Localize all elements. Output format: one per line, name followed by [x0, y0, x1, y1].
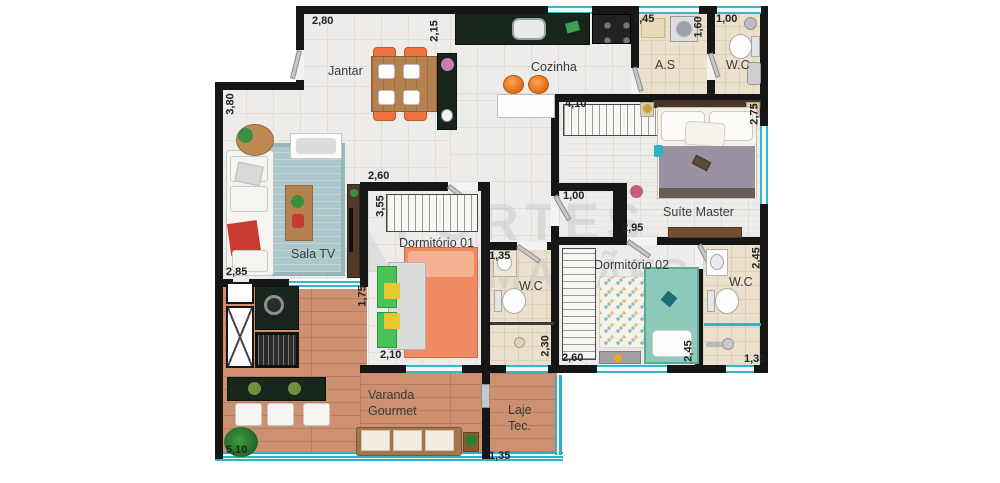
laje-line1: Laje — [508, 402, 532, 418]
place-setting — [403, 90, 420, 105]
room-label-wc-meio: W.C — [519, 279, 543, 293]
toilet-wc-suite — [715, 288, 739, 314]
varanda-sofa-cushion — [393, 430, 422, 451]
room-label-dorm2: Dormitório 02 — [594, 258, 669, 272]
dim-sala-left: 3,80 — [225, 93, 237, 114]
flower-vase — [441, 58, 454, 71]
tv — [349, 208, 353, 252]
suite-pillow-small — [684, 121, 726, 148]
varanda-sofa-cushion — [425, 430, 454, 451]
room-label-wc-top: W.C — [726, 58, 750, 72]
toilet-wc-top — [729, 34, 752, 59]
bar-stool — [235, 403, 262, 426]
laje-line2: Tec. — [508, 418, 532, 434]
suite-dresser — [668, 227, 742, 238]
varanda-line2: Gourmet — [368, 403, 417, 419]
dim-as-top: 1,45 — [633, 13, 654, 25]
duct-shaft — [226, 306, 254, 368]
bar-counter — [227, 377, 326, 401]
bar-plant — [288, 382, 301, 395]
toilet-tank-wc-top — [751, 36, 760, 57]
dim-laje-bottom: 1,35 — [489, 450, 510, 462]
window-dorm2 — [597, 365, 667, 373]
dim-dorm1-bottom: 2,10 — [380, 349, 401, 361]
place-setting — [403, 64, 420, 79]
wall-nook-right — [613, 183, 627, 245]
room-label-suite: Suíte Master — [663, 205, 734, 219]
dim-dorm1-left: 3,55 — [375, 195, 387, 216]
wall-dorm1-top — [360, 182, 448, 191]
coffee-table-decor — [292, 214, 304, 228]
wall-suite-bottom-right — [657, 237, 768, 245]
shaft-box — [226, 282, 254, 304]
shower-head-icon — [744, 17, 757, 30]
toilet-tank-wc-suite — [707, 290, 715, 312]
room-label-laje: Laje Tec. — [508, 402, 532, 435]
dim-dorm1-top: 2,60 — [368, 170, 389, 182]
suite-lamp — [643, 104, 652, 113]
bar-stool — [267, 403, 294, 426]
varanda-line1: Varanda — [368, 387, 417, 403]
wardrobe-dorm1 — [386, 194, 478, 232]
coffee-table — [285, 185, 313, 241]
dim-dorm2-right: 2,45 — [683, 340, 695, 361]
wall-suite-bottom-left — [559, 237, 627, 245]
gourmet-sink — [264, 295, 284, 315]
bar-stool — [303, 403, 330, 426]
floor-plan: FORTES GUIMARÃES 080 — [0, 0, 1000, 483]
grill — [255, 332, 299, 368]
dim-dorm1-varanda: 1,75 — [357, 285, 369, 306]
wall-wcmeio-top — [481, 242, 517, 250]
suite-blanket-edge — [659, 188, 755, 198]
wall-left — [215, 82, 223, 459]
wall-hall-right-low — [551, 226, 559, 373]
toilet-tank-wc-meio — [494, 290, 502, 312]
room-label-sala-tv: Sala TV — [291, 247, 335, 261]
window-wc-suite — [726, 365, 754, 373]
room-label-as: A.S — [655, 58, 675, 72]
bench-cushion — [296, 138, 336, 154]
dim-wc-suite-bottom: 1,35 — [744, 353, 765, 365]
wall-sala-dorm1 — [360, 182, 368, 287]
console-plant — [350, 189, 358, 197]
varanda-plant-small-leaves — [465, 434, 477, 446]
bar-plant — [248, 382, 261, 395]
wall-as-wc — [707, 6, 715, 54]
dim-jantar-right: 2,15 — [429, 20, 441, 41]
laje-gate — [481, 384, 490, 408]
wall-dorm1-wcmeio — [481, 182, 490, 373]
window-wc-meio — [506, 365, 548, 373]
table-plant — [238, 128, 253, 143]
dim-as-right: 1,60 — [693, 16, 705, 37]
stove — [592, 14, 631, 44]
dim-sala-left-bottom: 2,85 — [226, 266, 247, 278]
dim-wc-meio-bottom: 2,30 — [540, 335, 552, 356]
dim-suite-right: 2,75 — [749, 103, 761, 124]
room-label-varanda: Varanda Gourmet — [368, 387, 417, 420]
room-label-wc-suite: W.C — [729, 275, 753, 289]
suite-slippers — [654, 145, 663, 157]
slider-sala-varanda — [289, 279, 360, 289]
shower-divider-wc-meio — [490, 322, 554, 325]
kitchen-sink — [512, 18, 546, 40]
coffee-table-plant — [291, 195, 304, 208]
laje-railing-right — [555, 375, 562, 455]
shower-head-wc-suite — [722, 338, 734, 350]
kitchen-island — [497, 94, 555, 118]
dim-wc-suite-right: 2,45 — [751, 247, 763, 268]
dim-wc-top-width: 1,00 — [716, 13, 737, 25]
wall-as-wc-stub — [707, 80, 715, 96]
pink-decor — [630, 185, 643, 198]
dim-dorm2-bottom: 2,60 — [562, 352, 583, 364]
dim-cozinha-top: 3,45 — [456, 12, 477, 24]
kitchen-stool — [503, 75, 524, 94]
room-label-jantar: Jantar — [328, 64, 363, 78]
shower-drain-wc-meio — [514, 337, 525, 348]
room-label-dorm1: Dormitório 01 — [399, 236, 474, 250]
dim-hall-width: 1,00 — [563, 190, 584, 202]
dim-suite-top: 4,10 — [565, 98, 586, 110]
closet-dorm2 — [562, 248, 596, 360]
place-setting — [378, 64, 395, 79]
dim-jantar-top: 2,80 — [312, 15, 333, 27]
place-setting — [378, 90, 395, 105]
window-suite — [760, 126, 768, 204]
dim-wc-meio-top: 1,35 — [489, 250, 510, 262]
window-dorm1 — [406, 365, 462, 373]
crib-pillow — [384, 313, 400, 329]
decor-bowl — [441, 109, 453, 122]
wall-jog — [215, 82, 304, 90]
dim-varanda-bottom: 5,10 — [226, 444, 247, 456]
shower-divider-wc-suite — [704, 323, 761, 326]
dim-suite-bottom: 2,95 — [622, 222, 643, 234]
room-label-cozinha: Cozinha — [531, 60, 577, 74]
crib-pillow — [384, 283, 400, 299]
basin-wc-suite — [710, 254, 724, 270]
varanda-sofa-cushion — [361, 430, 390, 451]
kitchen-stool — [528, 75, 549, 94]
sofa-cushion — [230, 186, 268, 212]
desk-decor — [614, 354, 622, 362]
